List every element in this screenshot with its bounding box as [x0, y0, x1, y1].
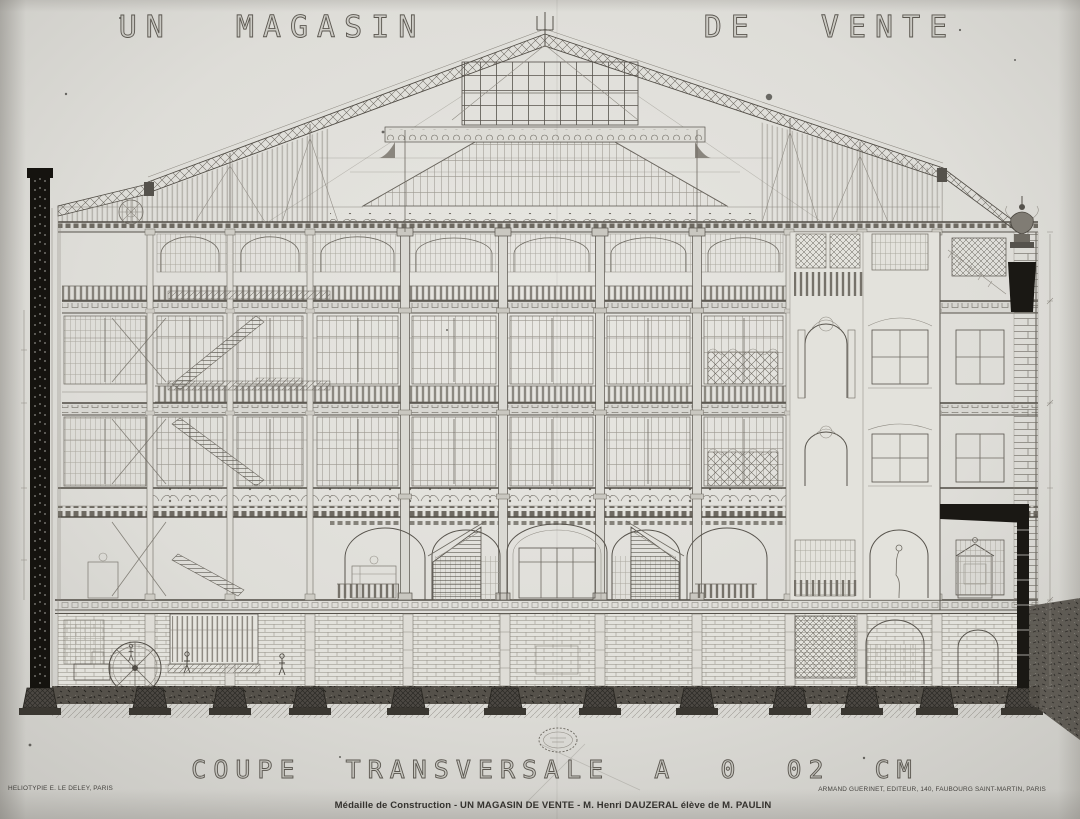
- publisher-credit: ARMAND GUERINET, EDITEUR, 140, FAUBOURG …: [818, 786, 1046, 793]
- foundations: [19, 686, 1043, 718]
- plate-title-left: UN MAGASIN: [119, 10, 426, 45]
- section-drawing: UN MAGASIN DE VENTE COUPE TRANSVERSALE A…: [0, 0, 1080, 819]
- facade-glazing: [62, 234, 783, 486]
- plate-sheet: UN MAGASIN DE VENTE COUPE TRANSVERSALE A…: [0, 0, 1080, 819]
- plate-caption: Médaille de Construction - UN MAGASIN DE…: [335, 800, 772, 811]
- plate-subtitle: COUPE TRANSVERSALE A 0 02 CM: [191, 755, 918, 784]
- plate-title-right: DE VENTE: [704, 10, 957, 45]
- basement: [58, 614, 1038, 694]
- printer-credit: HELIOTYPIE E. LE DELEY, PARIS: [8, 785, 113, 792]
